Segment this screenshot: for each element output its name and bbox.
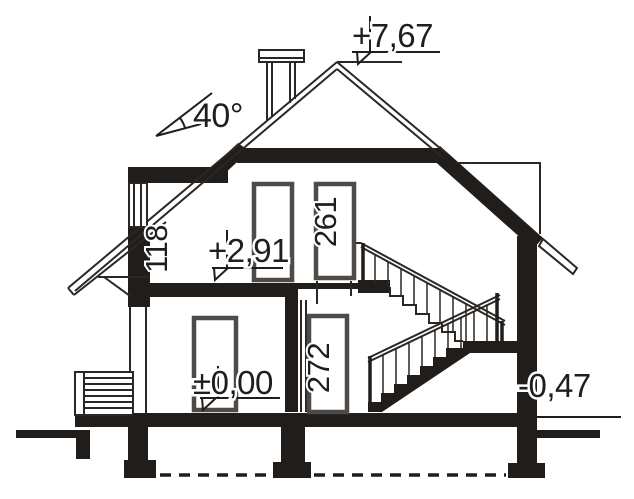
cross-section-drawing: +7,67 40° +2,91 ±0,00 -0,47 118 261 272: [0, 0, 634, 499]
label-upper-floor-level: +2,91: [208, 232, 289, 269]
roof-section-right: [430, 146, 543, 249]
terrain-left: [16, 430, 78, 438]
eave-left-cap: [68, 288, 74, 295]
eave-right-overhang: [539, 239, 577, 274]
section-svg: +7,67 40° +2,91 ±0,00 -0,47 118 261 272: [0, 0, 634, 499]
marker-upper-flag: [214, 268, 228, 280]
label-knee-wall-height: 118: [139, 225, 174, 273]
foundation-left-footing: [124, 460, 156, 478]
ground-slab: [75, 413, 537, 427]
terrain-left-block: [76, 430, 90, 459]
label-ground-room-height: 272: [301, 343, 336, 393]
label-ground-floor-level: ±0,00: [193, 364, 273, 401]
chimney-cap: [259, 50, 304, 62]
foundation-right-footing: [508, 463, 545, 478]
terrain-right: [537, 430, 600, 438]
roof-right-inner: [337, 69, 442, 157]
balusters-upper: [375, 254, 466, 341]
attic-ceiling-band: [237, 148, 440, 163]
stair-lower-flight: [368, 341, 532, 412]
foundation-mid-stem: [281, 427, 305, 462]
label-terrain-level: -0,47: [518, 367, 591, 404]
eave-left-brace: [104, 277, 130, 296]
knee-wall-window: [129, 183, 147, 227]
label-ridge-level: +7,67: [352, 17, 433, 54]
label-roof-angle: 40°: [193, 97, 243, 135]
chimney-body: [267, 62, 295, 121]
foundation-left-stem: [128, 427, 148, 462]
upper-slab-edge: [298, 283, 362, 289]
roof-left-outer: [68, 62, 337, 288]
label-upper-room-height: 261: [308, 197, 343, 247]
cut-structure: [16, 143, 600, 478]
foundation-right-stem: [517, 427, 537, 463]
foundation-mid-footing: [273, 462, 311, 478]
roof-right-outer: [337, 62, 447, 154]
ground-partition-wall: [285, 297, 298, 412]
upper-floor-slab: [148, 283, 298, 297]
